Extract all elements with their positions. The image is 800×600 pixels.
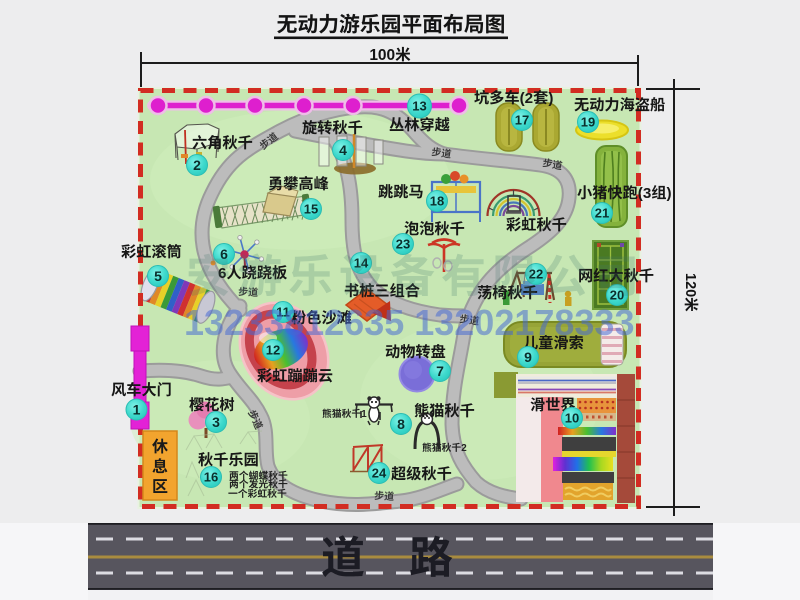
svg-text:17: 17 xyxy=(515,113,529,128)
svg-text:): ) xyxy=(667,185,672,202)
svg-text:120: 120 xyxy=(682,273,698,297)
svg-text:5: 5 xyxy=(154,268,162,284)
svg-text:): ) xyxy=(548,90,553,107)
svg-text:8: 8 xyxy=(397,416,405,432)
svg-text:1: 1 xyxy=(361,409,367,420)
svg-text:4: 4 xyxy=(339,142,347,158)
svg-text:15: 15 xyxy=(304,202,318,217)
svg-text:7: 7 xyxy=(436,363,444,379)
svg-text:1: 1 xyxy=(133,402,141,418)
svg-text:2: 2 xyxy=(461,443,467,454)
svg-text:(2: (2 xyxy=(520,90,534,107)
svg-text:10: 10 xyxy=(565,411,579,426)
svg-text:24: 24 xyxy=(372,466,387,481)
svg-text:(3: (3 xyxy=(638,185,652,202)
svg-text:2: 2 xyxy=(193,157,201,173)
svg-text:3: 3 xyxy=(212,414,220,430)
svg-text:13: 13 xyxy=(412,99,426,114)
svg-text:9: 9 xyxy=(524,349,532,365)
svg-text:23: 23 xyxy=(396,237,410,252)
svg-text:12: 12 xyxy=(266,343,280,358)
svg-text:13233812635 13202178333: 13233812635 13202178333 xyxy=(184,302,634,343)
svg-text:18: 18 xyxy=(430,194,444,209)
svg-text:20: 20 xyxy=(610,288,624,303)
svg-text:100: 100 xyxy=(369,47,395,64)
svg-text:19: 19 xyxy=(581,115,595,130)
svg-text:16: 16 xyxy=(204,470,218,485)
svg-text:21: 21 xyxy=(595,206,609,221)
